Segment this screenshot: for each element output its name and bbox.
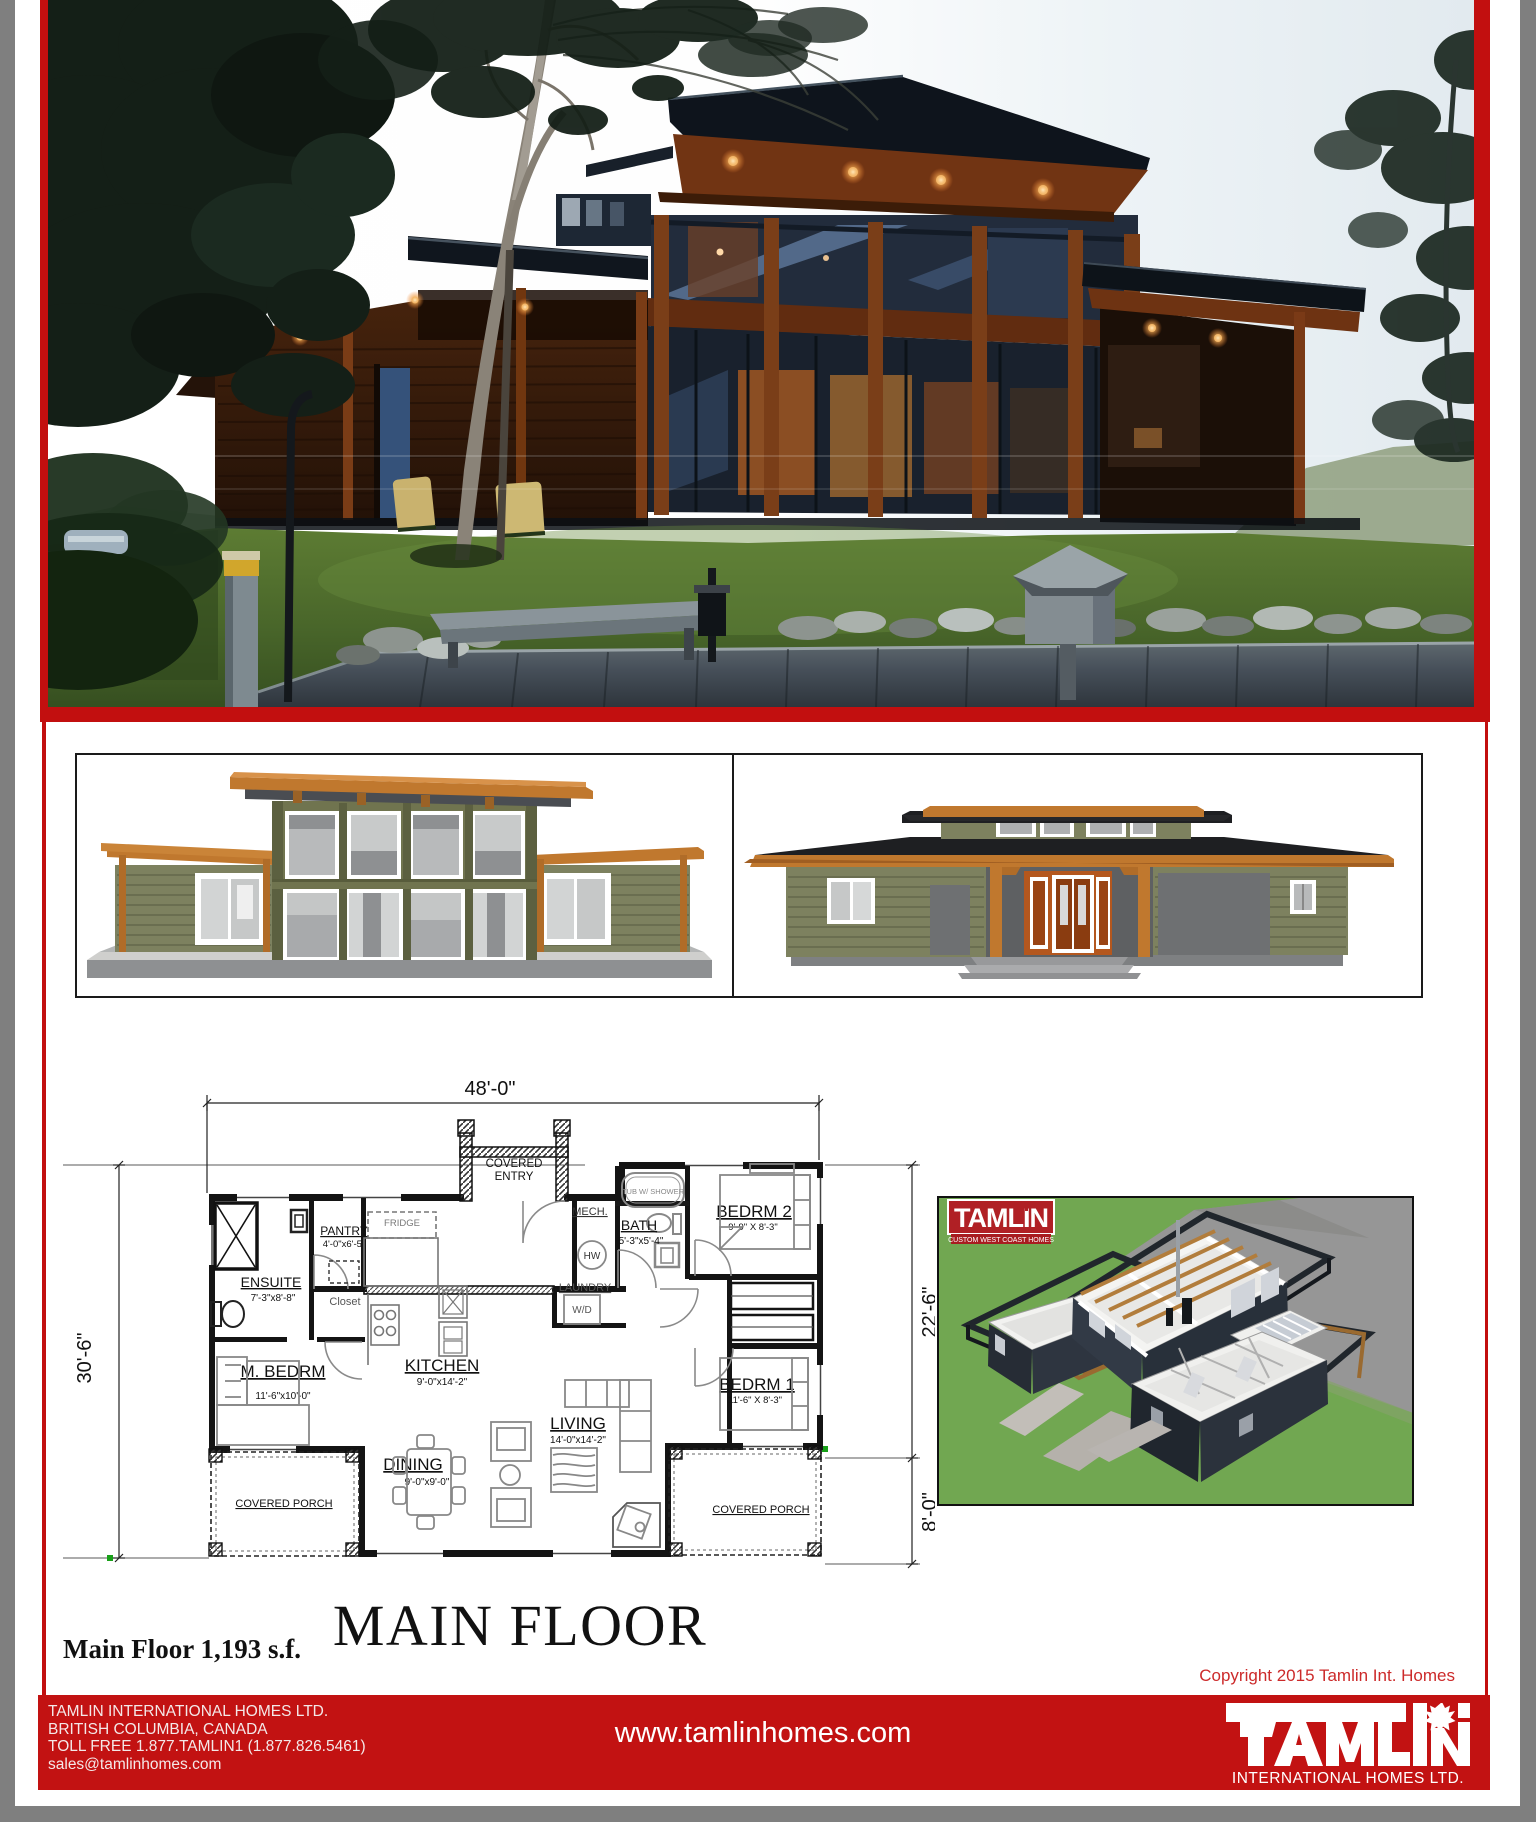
svg-text:TAMLIN: TAMLIN [954,1203,1048,1233]
svg-text:HW: HW [584,1251,601,1262]
svg-text:BEDRM 2: BEDRM 2 [716,1202,792,1221]
svg-text:LIVING: LIVING [550,1414,606,1433]
svg-text:8'-0": 8'-0" [919,1492,935,1532]
svg-text:BATH: BATH [621,1217,657,1233]
svg-text:22'-6": 22'-6" [919,1287,935,1338]
svg-text:11'-6" X 8'-3": 11'-6" X 8'-3" [728,1395,782,1406]
svg-text:LAUNDRY: LAUNDRY [559,1282,612,1294]
svg-text:Closet: Closet [329,1296,360,1308]
svg-text:PANTRY: PANTRY [320,1224,368,1238]
svg-text:MECH.: MECH. [572,1206,607,1218]
svg-text:9'-0"x9'-0": 9'-0"x9'-0" [405,1477,450,1488]
svg-text:11'-6"x10'-0": 11'-6"x10'-0" [255,1391,311,1402]
svg-text:CUSTOM WEST COAST HOMES: CUSTOM WEST COAST HOMES [948,1237,1054,1244]
svg-text:ENSUITE: ENSUITE [241,1274,302,1290]
svg-text:COVERED PORCH: COVERED PORCH [712,1504,809,1516]
svg-text:TUB W/ SHOWER: TUB W/ SHOWER [622,1187,685,1196]
svg-text:FRIDGE: FRIDGE [384,1218,420,1229]
svg-text:COVERED PORCH: COVERED PORCH [235,1498,332,1510]
svg-text:14'-0"x14'-2": 14'-0"x14'-2" [550,1435,606,1446]
svg-text:30'-6": 30'-6" [74,1333,96,1384]
svg-text:7'-3"x8'-8": 7'-3"x8'-8" [251,1293,296,1304]
svg-text:4'-0"x6'-5": 4'-0"x6'-5" [323,1239,366,1250]
svg-text:48'-0": 48'-0" [465,1078,516,1100]
svg-text:M. BEDRM: M. BEDRM [241,1362,326,1381]
svg-text:5'-3"x5'-4": 5'-3"x5'-4" [619,1236,664,1247]
svg-text:W/D: W/D [572,1305,591,1316]
svg-text:INTERNATIONAL HOMES LTD.: INTERNATIONAL HOMES LTD. [1232,1770,1464,1787]
svg-text:9'-0"x14'-2": 9'-0"x14'-2" [417,1377,468,1388]
svg-text:ENTRY: ENTRY [495,1171,534,1183]
svg-text:BEDRM 1: BEDRM 1 [719,1375,795,1394]
svg-text:COVERED: COVERED [486,1158,543,1170]
svg-text:KITCHEN: KITCHEN [405,1356,480,1375]
